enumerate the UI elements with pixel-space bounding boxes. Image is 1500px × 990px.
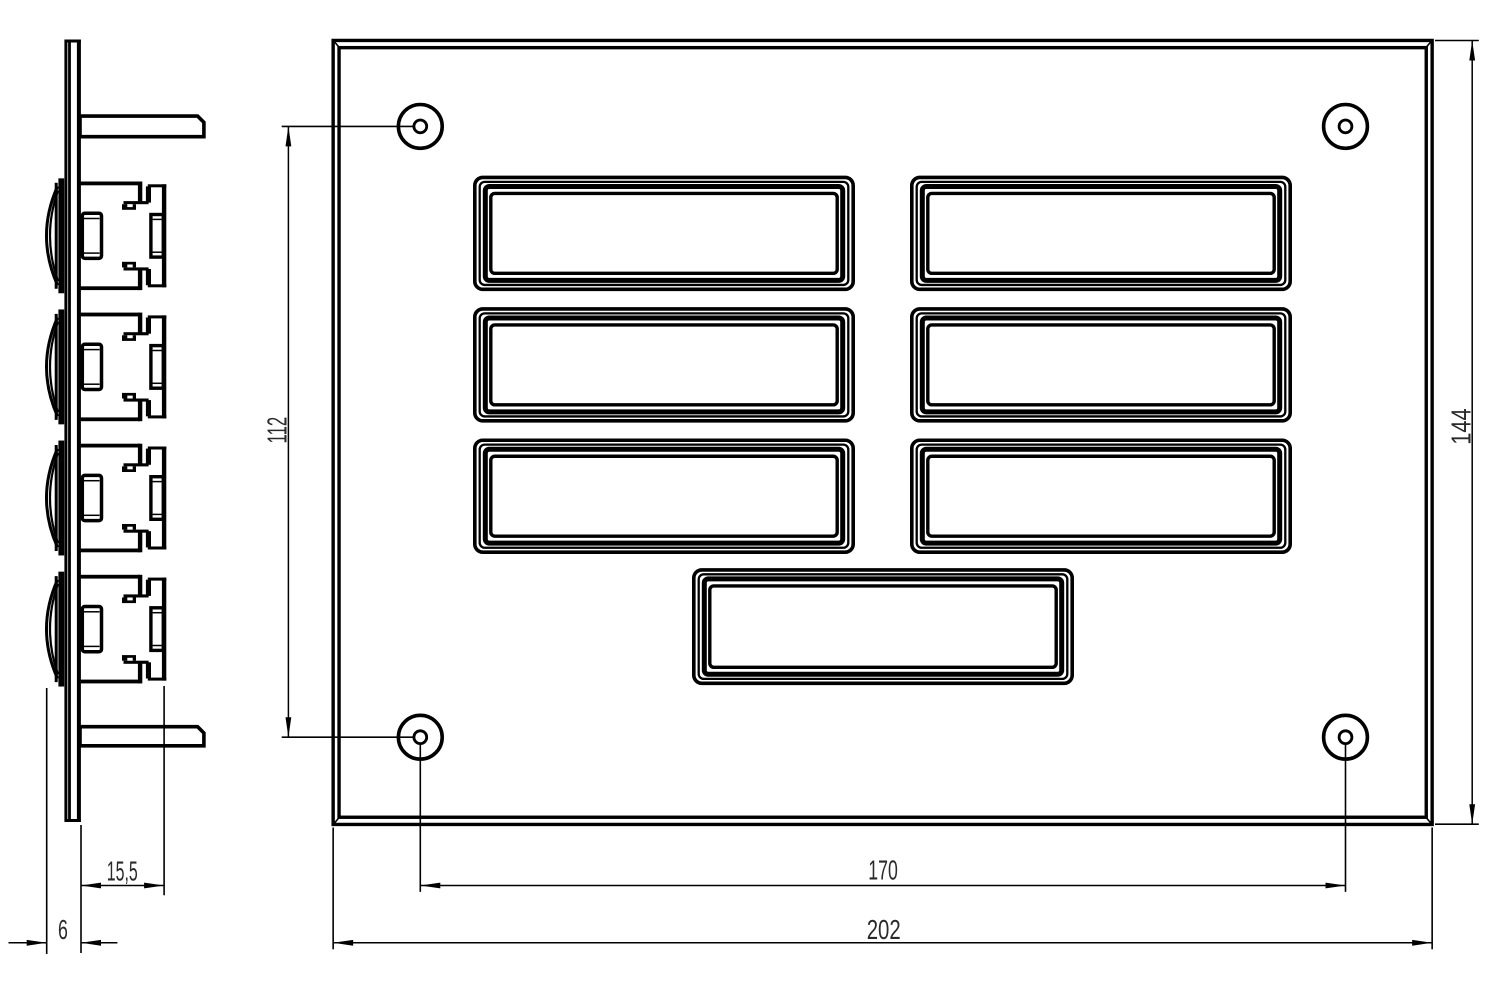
svg-text:202: 202 [867, 914, 901, 945]
svg-text:112: 112 [262, 417, 293, 444]
svg-text:144: 144 [1446, 408, 1477, 444]
svg-text:15,5: 15,5 [107, 855, 138, 886]
svg-text:170: 170 [868, 854, 898, 885]
svg-text:6: 6 [58, 914, 68, 945]
